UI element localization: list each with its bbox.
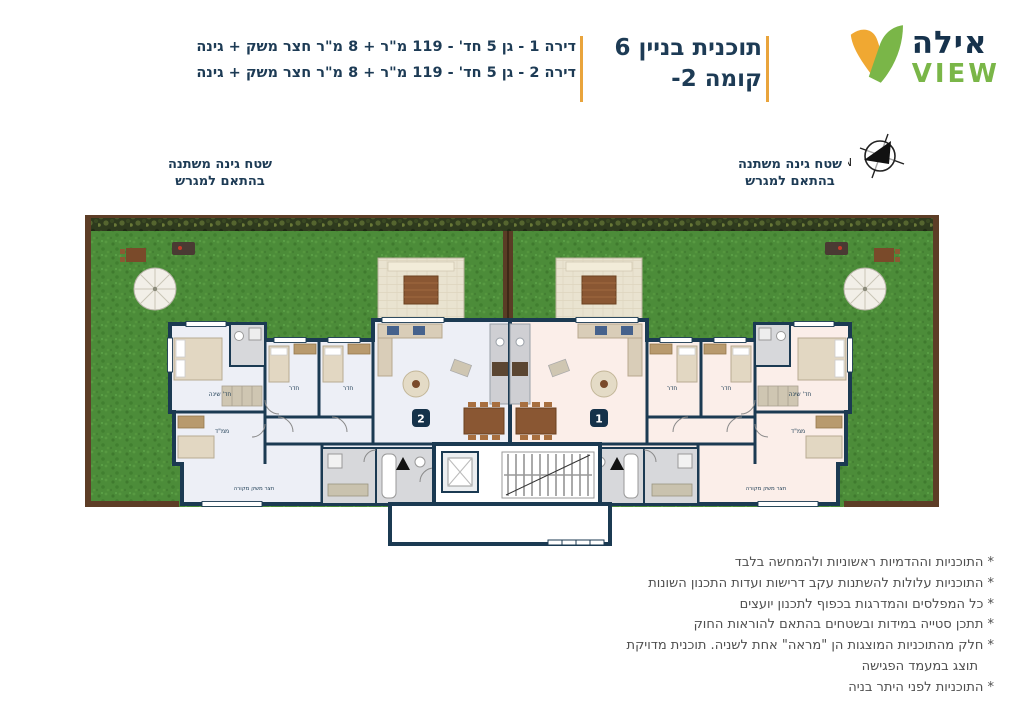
disclaimer-line: * חלק מהתוכניות המוצגות הן "מראה" אחת לש… xyxy=(627,636,994,657)
room-label-bedroom: חדר xyxy=(289,385,300,392)
disclaimer-line: * התוכניות עלולות להשתנות עקב דרישות ועד… xyxy=(627,574,994,595)
room-label-utility-left: חצר משק מקורה xyxy=(234,486,275,492)
brand-name-hebrew: אילה xyxy=(912,28,988,59)
room-label-master-left: חד' שינה xyxy=(209,391,232,398)
disclaimer-line: * התוכניות וההדמיות ראשוניות ולהמחשה בלב… xyxy=(627,553,994,574)
apartment-spec-2: דירה 2 - גן 5 חד' - 119 מ"ר + 8 מ"ר חצר … xyxy=(196,60,576,86)
page-title: תוכנית בניין 6 קומה 2- xyxy=(615,33,762,95)
brand-v-icon xyxy=(846,24,906,90)
apartment-spec-1: דירה 1 - גן 5 חד' - 119 מ"ר + 8 מ"ר חצר … xyxy=(196,34,576,60)
page-title-line1: תוכנית בניין 6 xyxy=(615,33,762,64)
disclaimer-line-continuation: תוצג במעמד הפגישה xyxy=(627,657,994,678)
header-divider-left xyxy=(580,36,583,102)
disclaimer-line: * כל המפלסים והמדרגות בכפוף לתכנון יועצי… xyxy=(627,595,994,616)
unit-badge-2: 2 xyxy=(412,409,430,427)
garden-note-left: שטח גינה משתנה בהתאם למגרש xyxy=(130,156,310,190)
svg-text:2: 2 xyxy=(417,413,425,426)
svg-text:1: 1 xyxy=(595,413,603,426)
room-label-utility-right: חצר משק מקורה xyxy=(746,486,787,492)
room-label-bedroom: חדר xyxy=(667,385,678,392)
garden-note-left-line2: בהתאם למגרש xyxy=(130,173,310,190)
disclaimer-line: * התוכניות לפני היתר בניה xyxy=(627,678,994,699)
brand-text: אילה VIEW xyxy=(912,28,1000,87)
stair-core xyxy=(434,444,600,504)
disclaimer-notes: * התוכניות וההדמיות ראשוניות ולהמחשה בלב… xyxy=(627,553,994,699)
header-divider-right xyxy=(766,36,769,102)
lobby-corridor xyxy=(390,504,610,545)
garden-note-right-line2: בהתאם למגרש xyxy=(700,173,880,190)
unit-badge-1: 1 xyxy=(590,409,608,427)
floorplan-page: { "header": { "brand": { "name_hebrew": … xyxy=(0,0,1024,724)
brand-logo: אילה VIEW xyxy=(846,24,1000,90)
room-label-mamad: ממ"ד xyxy=(215,428,229,435)
stairs xyxy=(502,452,594,498)
garden-note-left-line1: שטח גינה משתנה xyxy=(130,156,310,173)
garden-note-right: שטח גינה משתנה בהתאם למגרש xyxy=(700,156,880,190)
garden-note-right-line1: שטח גינה משתנה xyxy=(700,156,880,173)
room-label-mamad: ממ"ד xyxy=(791,428,805,435)
disclaimer-line: * תתכן סטייה במידות ובשטחים בהתאם להוראו… xyxy=(627,615,994,636)
room-label-bedroom: חדר xyxy=(721,385,732,392)
apartment-specs: דירה 1 - גן 5 חד' - 119 מ"ר + 8 מ"ר חצר … xyxy=(196,34,576,86)
room-label-master-right: חד' שינה xyxy=(789,391,812,398)
page-title-line2: קומה 2- xyxy=(615,64,762,95)
brand-name-latin: VIEW xyxy=(912,61,1000,87)
room-label-bedroom: חדר xyxy=(343,385,354,392)
floor-plan: 2 1 חד' שינה חדר חדר ממ"ד חצר משק מקורה … xyxy=(82,212,942,547)
